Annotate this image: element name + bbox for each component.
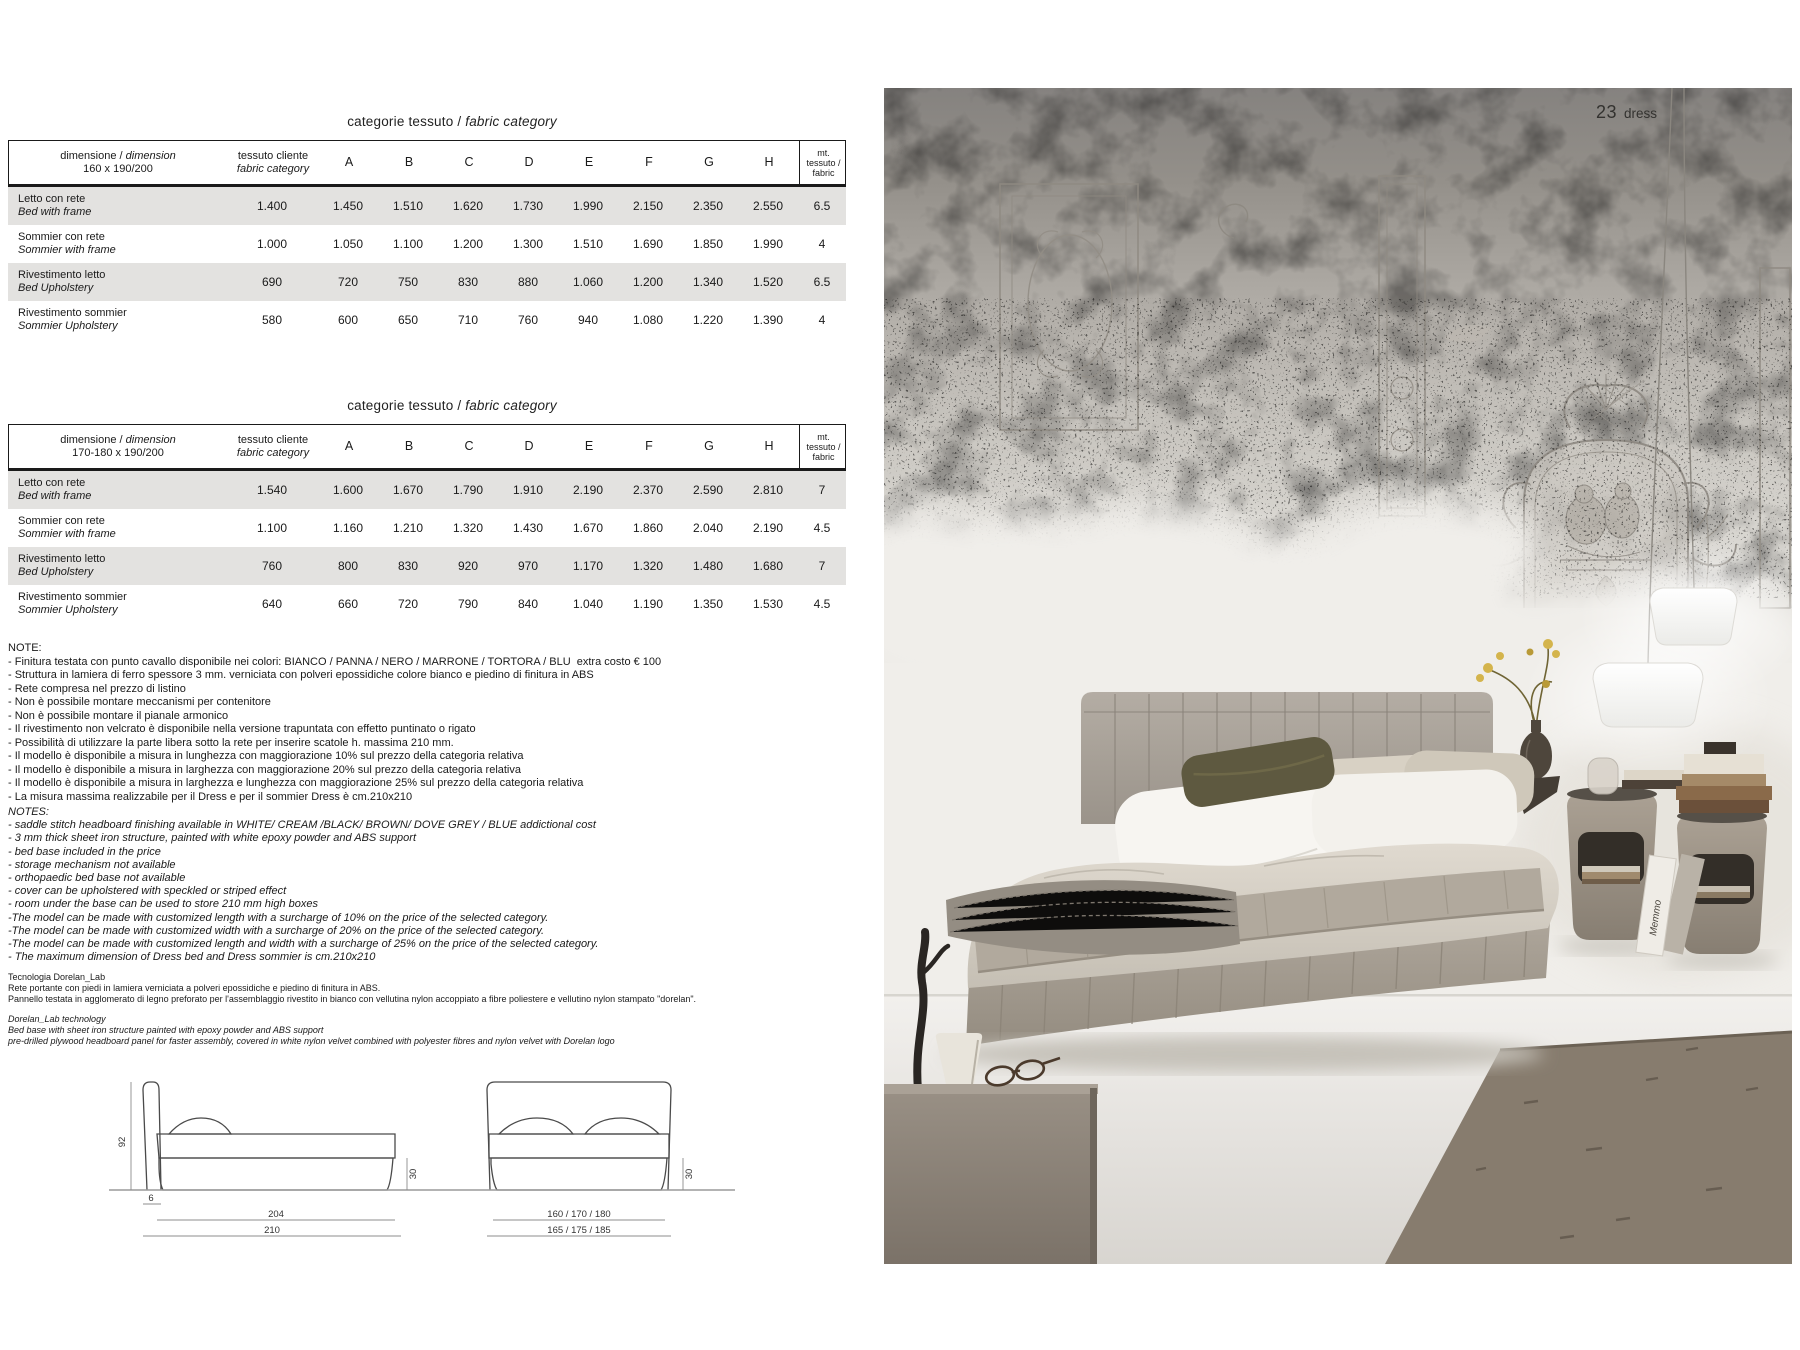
note-en-item: - saddle stitch headboard finishing avai… xyxy=(8,819,848,832)
note-it-item: - Rete compresa nel prezzo di listino xyxy=(8,683,848,697)
row-label: Sommier con reteSommier with frame xyxy=(8,225,226,263)
dim-length-204: 204 xyxy=(268,1209,284,1220)
price-cell: 1.510 xyxy=(558,225,618,263)
price-cell: 830 xyxy=(438,263,498,301)
note-it-item: - Finitura testata con punto cavallo dis… xyxy=(8,656,848,670)
technical-drawings: 92 6 204 210 30 160 / 170 / 180 165 / 17… xyxy=(95,1072,755,1272)
table-header-row: dimensione / dimension160 x 190/200tessu… xyxy=(8,140,846,187)
price-cell: 1.530 xyxy=(738,585,798,623)
price-cell: 2.190 xyxy=(738,509,798,547)
price-cell: 1.200 xyxy=(618,263,678,301)
price-cell: 1.430 xyxy=(498,509,558,547)
header-category-C: C xyxy=(439,425,499,468)
mt-value: 4.5 xyxy=(798,509,846,547)
table-row: Sommier con reteSommier with frame1.0001… xyxy=(8,225,846,263)
price-cell: 1.910 xyxy=(498,471,558,509)
price-cell: 1.450 xyxy=(318,187,378,225)
note-en-item: - cover can be upholstered with speckled… xyxy=(8,885,848,898)
note-it-item: - La misura massima realizzabile per il … xyxy=(8,791,848,805)
table-row: Sommier con reteSommier with frame1.1001… xyxy=(8,509,846,547)
price-cell: 1.990 xyxy=(558,187,618,225)
side-view-drawing xyxy=(143,1082,395,1190)
header-mt-fabric: mt.tessuto /fabric xyxy=(799,141,847,184)
header-category-B: B xyxy=(379,425,439,468)
note-en-item: - The maximum dimension of Dress bed and… xyxy=(8,951,848,964)
price-cell: 1.990 xyxy=(738,225,798,263)
bed-shadow xyxy=(944,1036,1544,1072)
lamp-shade-upper xyxy=(1650,588,1737,645)
technology-italian: Tecnologia Dorelan_LabRete portante con … xyxy=(8,972,848,1005)
mt-value: 7 xyxy=(798,547,846,585)
price-cell: 800 xyxy=(318,547,378,585)
tech-en-heading: Dorelan_Lab technology xyxy=(8,1014,848,1025)
price-cell: 1.040 xyxy=(558,585,618,623)
table-row: Letto con reteBed with frame1.5401.6001.… xyxy=(8,471,846,509)
header-category-D: D xyxy=(499,425,559,468)
price-cell: 1.350 xyxy=(678,585,738,623)
tech-it-heading: Tecnologia Dorelan_Lab xyxy=(8,972,848,983)
customer-price: 760 xyxy=(226,547,318,585)
knit-throw xyxy=(946,880,1240,955)
price-cell: 880 xyxy=(498,263,558,301)
price-cell: 2.150 xyxy=(618,187,678,225)
dim-length-210: 210 xyxy=(264,1225,280,1236)
page-label: 23 dress xyxy=(1596,102,1657,123)
customer-price: 580 xyxy=(226,301,318,339)
dim-foot-6: 6 xyxy=(148,1193,153,1204)
header-category-E: E xyxy=(559,425,619,468)
price-cell: 1.520 xyxy=(738,263,798,301)
row-label: Sommier con reteSommier with frame xyxy=(8,509,226,547)
header-category-G: G xyxy=(679,425,739,468)
price-cell: 650 xyxy=(378,301,438,339)
mt-value: 7 xyxy=(798,471,846,509)
table-title-it: categorie tessuto / xyxy=(347,398,465,413)
note-en-item: - room under the base can be used to sto… xyxy=(8,898,848,911)
fabric-table-160: categorie tessuto / fabric categorydimen… xyxy=(8,114,846,339)
table-title: categorie tessuto / fabric category xyxy=(8,398,846,413)
price-cell: 940 xyxy=(558,301,618,339)
price-cell: 1.320 xyxy=(438,509,498,547)
row-label: Letto con reteBed with frame xyxy=(8,187,226,225)
customer-price: 640 xyxy=(226,585,318,623)
header-category-H: H xyxy=(739,425,799,468)
fabric-table-170-180: categorie tessuto / fabric categorydimen… xyxy=(8,398,846,623)
front-view-drawing xyxy=(487,1082,671,1190)
tech-it-item: Pannello testata in agglomerato di legno… xyxy=(8,994,848,1005)
price-cell: 1.300 xyxy=(498,225,558,263)
price-cell: 2.550 xyxy=(738,187,798,225)
dim-width-inner: 160 / 170 / 180 xyxy=(547,1209,610,1220)
price-cell: 1.620 xyxy=(438,187,498,225)
customer-price: 1.400 xyxy=(226,187,318,225)
lamp-shade-lower xyxy=(1593,663,1703,727)
price-cell: 1.730 xyxy=(498,187,558,225)
header-mt-fabric: mt.tessuto /fabric xyxy=(799,425,847,468)
price-cell: 1.170 xyxy=(558,547,618,585)
header-category-B: B xyxy=(379,141,439,184)
mt-value: 4.5 xyxy=(798,585,846,623)
price-cell: 2.350 xyxy=(678,187,738,225)
note-en-item: -The model can be made with customized w… xyxy=(8,925,848,938)
price-cell: 1.210 xyxy=(378,509,438,547)
price-cell: 920 xyxy=(438,547,498,585)
cabinet-body xyxy=(884,1094,1092,1264)
price-cell: 1.670 xyxy=(378,471,438,509)
price-cell: 1.190 xyxy=(618,585,678,623)
note-en-item: -The model can be made with customized l… xyxy=(8,938,848,951)
note-en-heading: NOTES: xyxy=(8,806,848,819)
price-cell: 1.790 xyxy=(438,471,498,509)
note-it-item: - Il modello è disponibile a misura in l… xyxy=(8,764,848,778)
price-cell: 600 xyxy=(318,301,378,339)
price-cell: 1.390 xyxy=(738,301,798,339)
price-cell: 830 xyxy=(378,547,438,585)
table-title-it: categorie tessuto / xyxy=(347,114,465,129)
mt-value: 6.5 xyxy=(798,187,846,225)
glass-cup xyxy=(1588,758,1618,794)
dimension-value: 170-180 x 190/200 xyxy=(72,447,164,460)
note-it-heading: NOTE: xyxy=(8,642,848,656)
price-cell: 2.590 xyxy=(678,471,738,509)
header-category-F: F xyxy=(619,141,679,184)
note-it-item: - Possibilità di utilizzare la parte lib… xyxy=(8,737,848,751)
price-cell: 1.100 xyxy=(378,225,438,263)
room-photo: Memmo 23 dress xyxy=(884,88,1792,1264)
table-row: Rivestimento sommierSommier Upholstery64… xyxy=(8,585,846,623)
catalog-page: categorie tessuto / fabric categorydimen… xyxy=(0,0,1800,1350)
note-it-item: - Il modello è disponibile a misura in l… xyxy=(8,750,848,764)
price-cell: 790 xyxy=(438,585,498,623)
price-cell: 660 xyxy=(318,585,378,623)
header-category-H: H xyxy=(739,141,799,184)
notes-italian: NOTE:- Finitura testata con punto cavall… xyxy=(8,642,848,804)
price-cell: 2.810 xyxy=(738,471,798,509)
header-customer-fabric: tessuto clientefabric category xyxy=(227,425,319,468)
header-dimension: dimensione / dimension160 x 190/200 xyxy=(9,141,227,184)
table-title-en: fabric category xyxy=(465,114,557,129)
price-cell: 2.040 xyxy=(678,509,738,547)
tech-it-item: Rete portante con piedi in lamiera verni… xyxy=(8,983,848,994)
price-cell: 2.190 xyxy=(558,471,618,509)
table-row: Rivestimento sommierSommier Upholstery58… xyxy=(8,301,846,339)
table-header-row: dimensione / dimension170-180 x 190/200t… xyxy=(8,424,846,471)
price-cell: 1.680 xyxy=(738,547,798,585)
price-cell: 1.690 xyxy=(618,225,678,263)
price-cell: 1.160 xyxy=(318,509,378,547)
price-cell: 720 xyxy=(378,585,438,623)
price-cell: 1.320 xyxy=(618,547,678,585)
header-category-E: E xyxy=(559,141,619,184)
price-cell: 1.340 xyxy=(678,263,738,301)
price-cell: 1.050 xyxy=(318,225,378,263)
note-en-item: -The model can be made with customized l… xyxy=(8,912,848,925)
model-name: dress xyxy=(1624,106,1657,121)
header-category-C: C xyxy=(439,141,499,184)
niche-books xyxy=(1692,886,1750,898)
dimension-label: dimensione / dimension xyxy=(60,434,176,447)
price-cell: 1.670 xyxy=(558,509,618,547)
header-category-F: F xyxy=(619,425,679,468)
row-label: Rivestimento sommierSommier Upholstery xyxy=(8,585,226,623)
row-label: Rivestimento lettoBed Upholstery xyxy=(8,263,226,301)
note-it-item: - Il rivestimento non velcrato è disponi… xyxy=(8,723,848,737)
price-cell: 2.370 xyxy=(618,471,678,509)
price-cell: 1.510 xyxy=(378,187,438,225)
customer-price: 690 xyxy=(226,263,318,301)
price-cell: 750 xyxy=(378,263,438,301)
header-category-G: G xyxy=(679,141,739,184)
price-cell: 1.220 xyxy=(678,301,738,339)
price-cell: 1.080 xyxy=(618,301,678,339)
dimension-value: 160 x 190/200 xyxy=(83,163,153,176)
mt-value: 4 xyxy=(798,301,846,339)
dim-base-30-side: 30 xyxy=(408,1169,419,1180)
row-label: Letto con reteBed with frame xyxy=(8,471,226,509)
customer-price: 1.540 xyxy=(226,471,318,509)
tech-en-item: pre-drilled plywood headboard panel for … xyxy=(8,1036,848,1047)
header-category-A: A xyxy=(319,425,379,468)
table-title: categorie tessuto / fabric category xyxy=(8,114,846,129)
dimension-label: dimensione / dimension xyxy=(60,150,176,163)
mt-value: 6.5 xyxy=(798,263,846,301)
dim-height-92: 92 xyxy=(117,1137,128,1148)
price-cell: 1.200 xyxy=(438,225,498,263)
technology-english: Dorelan_Lab technologyBed base with shee… xyxy=(8,1014,848,1047)
note-it-item: - Struttura in lamiera di ferro spessore… xyxy=(8,669,848,683)
note-en-item: - 3 mm thick sheet iron structure, paint… xyxy=(8,832,848,845)
niche-books xyxy=(1582,866,1640,884)
dim-base-30-front: 30 xyxy=(684,1169,695,1180)
row-label: Rivestimento lettoBed Upholstery xyxy=(8,547,226,585)
note-it-item: - Non è possibile montare il pianale arm… xyxy=(8,710,848,724)
note-en-item: - storage mechanism not available xyxy=(8,859,848,872)
note-en-item: - orthopaedic bed base not available xyxy=(8,872,848,885)
header-category-A: A xyxy=(319,141,379,184)
notes-english: NOTES:- saddle stitch headboard finishin… xyxy=(8,806,848,964)
mt-value: 4 xyxy=(798,225,846,263)
header-dimension: dimensione / dimension170-180 x 190/200 xyxy=(9,425,227,468)
price-cell: 1.860 xyxy=(618,509,678,547)
price-cell: 1.850 xyxy=(678,225,738,263)
row-label: Rivestimento sommierSommier Upholstery xyxy=(8,301,226,339)
price-cell: 840 xyxy=(498,585,558,623)
note-it-item: - Non è possibile montare meccanismi per… xyxy=(8,696,848,710)
customer-price: 1.000 xyxy=(226,225,318,263)
table-row: Rivestimento lettoBed Upholstery69072075… xyxy=(8,263,846,301)
table-row: Rivestimento lettoBed Upholstery76080083… xyxy=(8,547,846,585)
note-en-item: - bed base included in the price xyxy=(8,846,848,859)
tech-en-item: Bed base with sheet iron structure paint… xyxy=(8,1025,848,1036)
table-row: Letto con reteBed with frame1.4001.4501.… xyxy=(8,187,846,225)
table-title-en: fabric category xyxy=(465,398,557,413)
price-cell: 970 xyxy=(498,547,558,585)
price-cell: 1.600 xyxy=(318,471,378,509)
note-it-item: - Il modello è disponibile a misura in l… xyxy=(8,777,848,791)
price-cell: 1.480 xyxy=(678,547,738,585)
header-customer-fabric: tessuto clientefabric category xyxy=(227,141,319,184)
price-cell: 720 xyxy=(318,263,378,301)
price-cell: 760 xyxy=(498,301,558,339)
price-cell: 1.060 xyxy=(558,263,618,301)
dim-width-outer: 165 / 175 / 185 xyxy=(547,1225,610,1236)
customer-price: 1.100 xyxy=(226,509,318,547)
price-cell: 710 xyxy=(438,301,498,339)
page-number: 23 xyxy=(1596,102,1617,123)
room-scene: Memmo xyxy=(884,88,1792,1264)
header-category-D: D xyxy=(499,141,559,184)
